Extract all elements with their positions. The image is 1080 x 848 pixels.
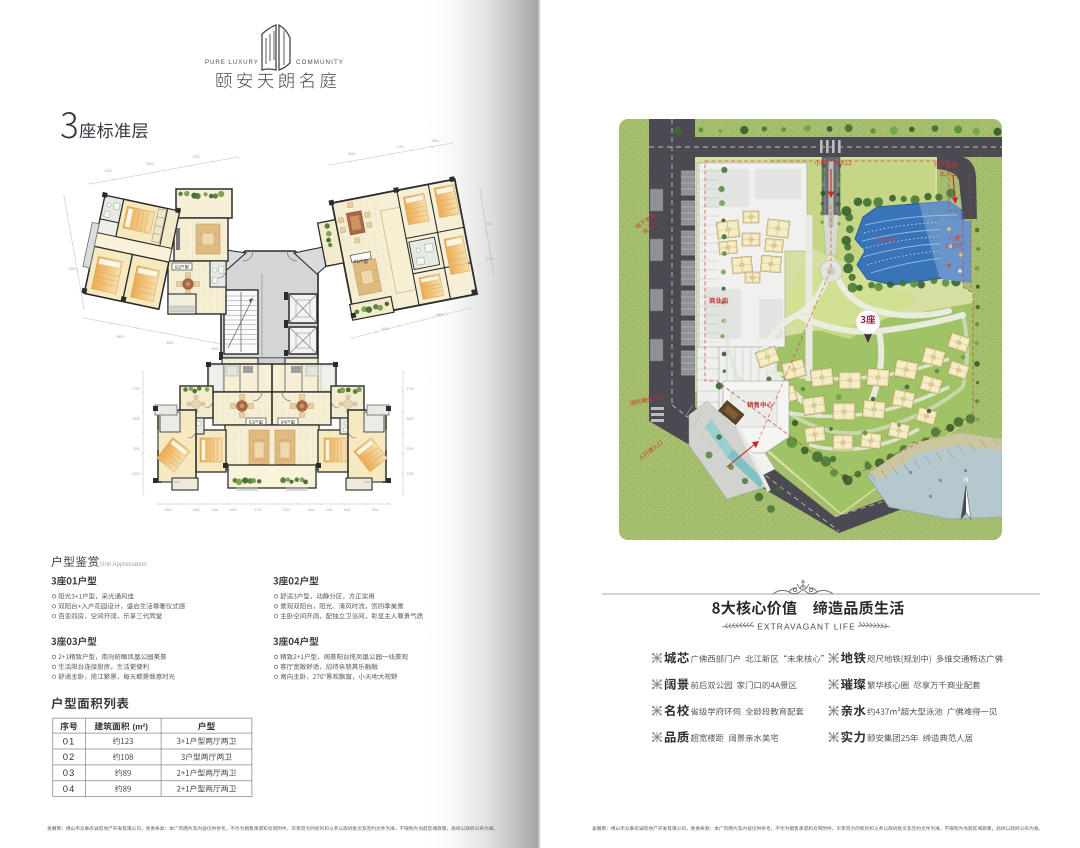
svg-text:1300: 1300 [132,447,139,451]
svg-text:1900: 1900 [371,508,378,512]
svg-text:1700: 1700 [406,387,413,391]
svg-text:2600: 2600 [406,417,413,421]
svg-text:3000: 3000 [348,152,355,156]
svg-text:1400: 1400 [192,508,199,512]
svg-text:2700: 2700 [486,257,493,261]
svg-text:1130: 1130 [407,472,414,476]
svg-text:1900: 1900 [164,508,171,512]
svg-text:1100: 1100 [326,508,333,512]
svg-text:1400: 1400 [343,508,350,512]
svg-text:N: N [963,477,968,484]
svg-text:1700: 1700 [132,387,139,391]
svg-text:3700: 3700 [254,508,261,512]
svg-text:1700: 1700 [396,145,403,149]
svg-text:2200: 2200 [132,472,139,476]
svg-text:2800: 2800 [166,341,173,345]
svg-text:2200: 2200 [406,447,413,451]
svg-text:PURE LUXURY: PURE LUXURY [205,59,259,66]
svg-text:1700: 1700 [192,155,199,159]
svg-text:3000: 3000 [146,162,153,166]
svg-text:COMMUNITY: COMMUNITY [296,59,344,66]
svg-text:Unit Appreciation: Unit Appreciation [100,561,147,568]
svg-text:3700: 3700 [282,508,289,512]
svg-text:02: 02 [63,752,76,763]
svg-text:EXTRAVAGANT LIFE: EXTRAVAGANT LIFE [757,622,856,632]
svg-text:3800: 3800 [436,313,443,317]
svg-text:3600: 3600 [116,335,123,339]
svg-text:1600: 1600 [229,508,236,512]
svg-text:1700: 1700 [104,169,111,173]
svg-text:1900: 1900 [431,139,438,143]
svg-text:1100: 1100 [212,508,219,512]
svg-text:2700: 2700 [484,222,491,226]
svg-text:03: 03 [63,768,76,779]
svg-text:04: 04 [63,784,76,795]
svg-text:(m²): (m²) [133,723,149,732]
svg-text:1600: 1600 [307,508,314,512]
svg-text:2630: 2630 [132,417,139,421]
svg-text:3000: 3000 [211,347,218,351]
svg-text:3300: 3300 [68,267,75,271]
svg-text:01: 01 [63,736,76,747]
svg-text:4500: 4500 [381,327,388,331]
